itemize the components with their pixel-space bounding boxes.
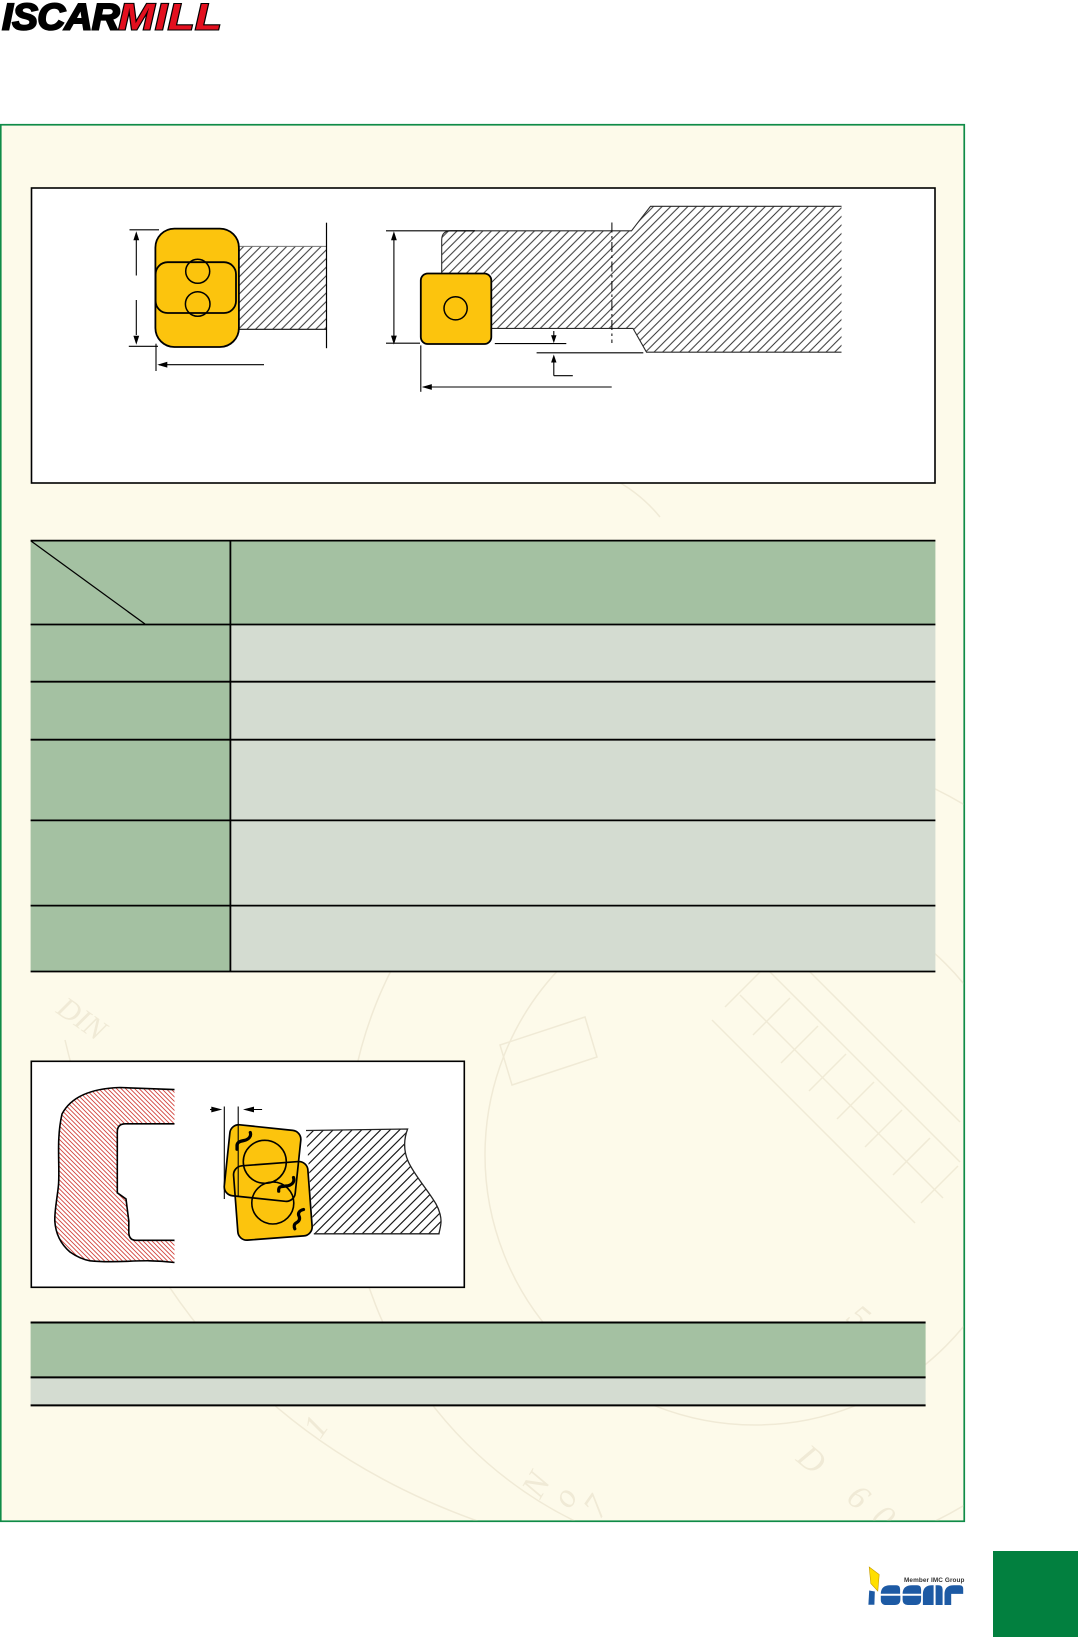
svg-text:MILL: MILL bbox=[118, 0, 222, 38]
svg-text:Member IMC Group: Member IMC Group bbox=[904, 1577, 965, 1584]
svg-text:ISCAR: ISCAR bbox=[2, 0, 119, 37]
